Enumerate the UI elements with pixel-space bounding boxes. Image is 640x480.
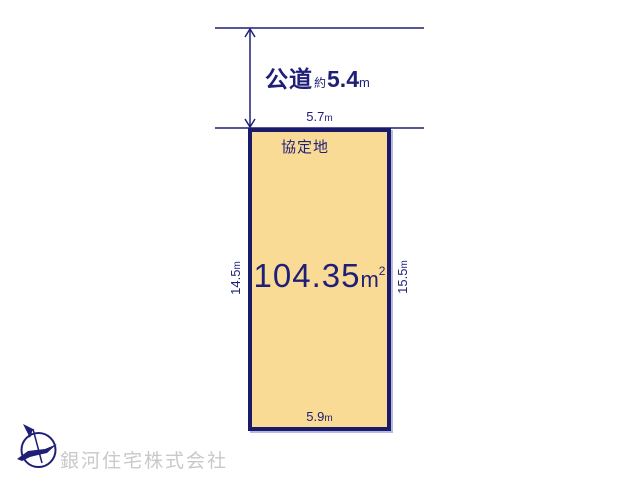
road-width-unit: m — [359, 75, 370, 90]
agreement-label: 協定地 — [281, 136, 329, 157]
top-edge-dimension: 5.7m — [248, 108, 391, 126]
area-value: 104.35 — [254, 257, 361, 294]
company-watermark: 銀河住宅株式会社 — [60, 446, 228, 473]
bottom-edge-dimension: 5.9m — [248, 408, 391, 426]
road-label: 公道 約 5.4 m — [265, 60, 370, 94]
area-exponent: 2 — [379, 264, 386, 278]
area-unit: m — [360, 267, 378, 292]
road-approx: 約 — [314, 74, 326, 91]
road-name: 公道 — [265, 60, 313, 94]
right-edge-dimension: 15.5m — [394, 260, 412, 294]
area-label: 104.35m2 — [248, 259, 391, 292]
road-width-value: 5.4 — [327, 66, 359, 93]
compass-icon — [17, 424, 57, 467]
left-edge-dimension: 14.5m — [227, 261, 245, 295]
land-plot-diagram: 公道 約 5.4 m 5.7m 協定地 14.5m 15.5m 104.35m2… — [0, 0, 640, 480]
